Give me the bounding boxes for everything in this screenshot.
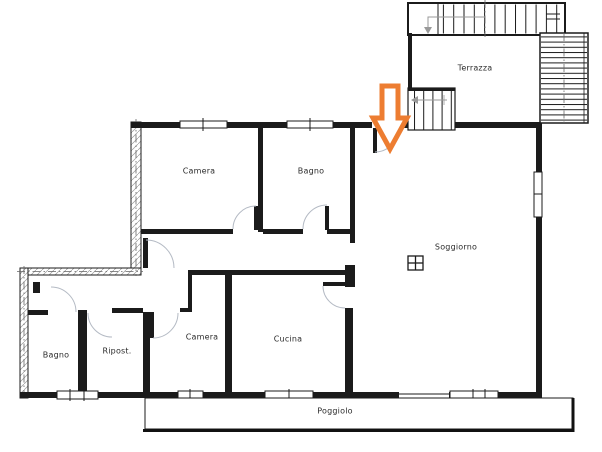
stairs-top [408, 0, 565, 37]
room-label-camera-bottom: Camera [186, 333, 219, 342]
room-label-bagno-bottom: Bagno [43, 351, 69, 360]
exterior-walls [20, 122, 542, 399]
room-label-soggiorno: Soggiorno [435, 243, 477, 252]
windows [57, 118, 542, 401]
shaft-symbol-icon [408, 256, 423, 270]
poggiolo-balcony [143, 398, 575, 432]
stairs-terrace [408, 88, 455, 130]
terrace-wall [408, 33, 412, 88]
window [57, 389, 98, 401]
window [287, 118, 333, 131]
room-label-ripost: Ripost. [102, 347, 131, 356]
floor-plan: Terrazza Camera Bagno Soggiorno Camera C… [0, 0, 602, 452]
stairs-right [540, 33, 588, 123]
room-label-terrazza: Terrazza [458, 64, 493, 73]
room-label-bagno-top: Bagno [298, 167, 324, 176]
room-label-poggiolo: Poggiolo [317, 407, 352, 416]
room-label-cucina: Cucina [274, 335, 302, 344]
window [534, 172, 542, 217]
room-label-camera-top: Camera [183, 167, 216, 176]
entrance-arrow-icon [373, 86, 407, 149]
window [180, 118, 227, 131]
floor-plan-drawing [0, 0, 602, 452]
